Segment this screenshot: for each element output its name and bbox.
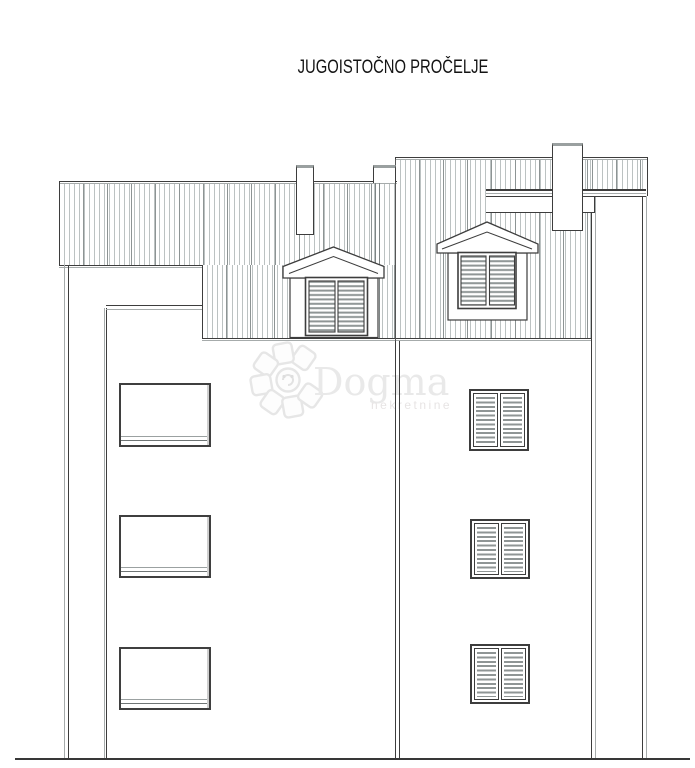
window-left-1 <box>119 383 211 447</box>
left-wall-line <box>68 265 69 759</box>
dormer-left-shutter-right <box>338 281 364 332</box>
building-joint-line-right <box>399 341 400 759</box>
right-face-line <box>591 213 592 759</box>
roof-eave-main-inner <box>202 340 592 341</box>
dormer-left <box>275 240 391 340</box>
chimney-left <box>296 165 314 235</box>
dormer-right-shutter-right <box>490 256 515 305</box>
dormer-right-shutter-left <box>461 256 486 305</box>
roof-right-edge <box>647 157 648 196</box>
dormer-left-roof <box>283 247 384 278</box>
left-face-line <box>106 308 107 759</box>
roof-section-boundary <box>395 159 396 341</box>
shutter-panel <box>501 523 526 575</box>
dormer-right <box>430 215 545 325</box>
roof-top-edge-left-inner <box>59 183 397 184</box>
left-wall-outer-line <box>64 265 65 759</box>
window-left-2 <box>119 515 211 578</box>
chimney-right <box>552 143 583 231</box>
roof-left-edge <box>59 181 60 266</box>
roof-eave-main <box>202 338 592 339</box>
roof-eave-left <box>59 265 203 266</box>
ground-line <box>15 758 690 760</box>
shutter-panel <box>474 523 499 575</box>
shutter-panel <box>500 393 525 447</box>
roof-top-edge-right-inner <box>395 159 648 160</box>
parapet-line <box>106 305 202 306</box>
window-left-3 <box>119 647 211 710</box>
roof-eave-left-inner <box>59 267 203 268</box>
shutter-panel <box>474 648 499 700</box>
roof-top-edge-right <box>395 157 648 158</box>
right-wall-outer-line <box>642 196 643 759</box>
shuttered-window-right-2 <box>470 519 530 579</box>
roof-middle-edge <box>202 265 203 339</box>
drawing-title: JUGOISTOČNO PROČELJE <box>268 57 518 79</box>
shutter-panel <box>501 648 526 700</box>
roof-top-edge-left <box>59 181 397 182</box>
dogma-watermark: Dogma nekretnine <box>243 336 453 428</box>
right-face-line-inner <box>595 196 596 759</box>
shutter-panel <box>473 393 498 447</box>
shuttered-window-right-1 <box>469 389 529 451</box>
building-joint-line-left <box>395 341 396 759</box>
right-wall-outer-line-inner <box>646 196 647 759</box>
chimney-small <box>373 165 396 183</box>
architectural-drawing: JUGOISTOČNO PROČELJE Dogma nekretnine <box>0 0 695 768</box>
dormer-left-shutter-left <box>309 281 335 332</box>
roof-hatch-right-upper <box>592 159 646 190</box>
parapet-line-inner <box>106 309 202 310</box>
left-face-outer-line <box>104 308 105 759</box>
shuttered-window-right-3 <box>470 644 530 704</box>
watermark-tagline: nekretnine <box>371 398 452 412</box>
dormer-right-roof <box>437 222 538 253</box>
